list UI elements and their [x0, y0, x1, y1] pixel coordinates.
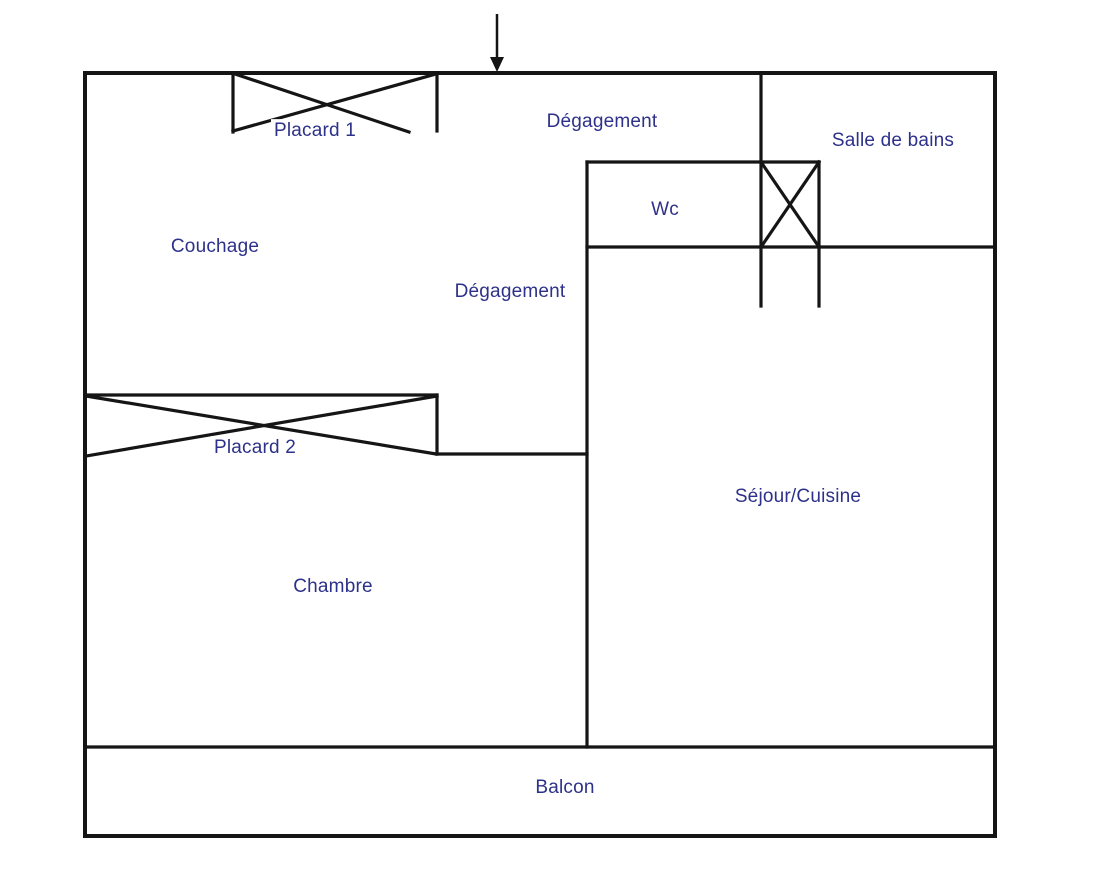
- room-label-salle-de-bains: Salle de bains: [829, 129, 957, 153]
- room-label-degagement-mid: Dégagement: [452, 280, 569, 304]
- room-label-couchage: Couchage: [168, 235, 262, 259]
- floorplan: Placard 1 Dégagement Salle de bains Wc C…: [0, 0, 1093, 883]
- entrance-arrow-head: [490, 57, 504, 72]
- room-label-balcon: Balcon: [532, 776, 597, 800]
- room-label-sejour-cuisine: Séjour/Cuisine: [732, 485, 864, 509]
- room-label-degagement-top: Dégagement: [544, 110, 661, 134]
- room-label-chambre: Chambre: [290, 575, 376, 599]
- room-label-placard-1: Placard 1: [271, 119, 359, 143]
- room-label-placard-2: Placard 2: [211, 436, 299, 460]
- room-label-wc: Wc: [648, 198, 682, 222]
